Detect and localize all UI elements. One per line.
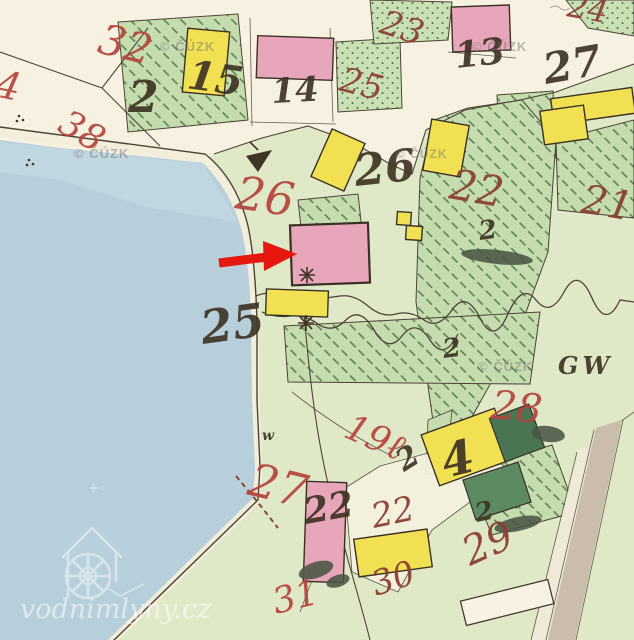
shed-small-1	[397, 212, 412, 226]
weir-symbol-1	[299, 267, 315, 283]
parcel-number: 28	[488, 382, 544, 433]
parcel-number: 21	[577, 176, 634, 230]
parcel-number: 22	[445, 159, 507, 217]
shed-small-2	[406, 225, 423, 240]
mill-building-target	[290, 223, 370, 286]
house-number: 2	[127, 72, 159, 123]
cuzk-watermark: © ČÚZK	[160, 39, 215, 54]
cuzk-watermark: © ČÚZK	[74, 146, 129, 161]
parcel-number-mill: 26	[231, 165, 297, 227]
house-number: 22	[299, 483, 357, 533]
cuzk-watermark: © ČÚZK	[472, 39, 527, 54]
weir-symbol-2	[298, 315, 314, 331]
cadastral-map[interactable]: 4 32 38 23 25 26 22 21 24 19ℓ 28 27 31 3…	[0, 0, 634, 640]
site-watermark: vodnimlyny.cz	[20, 594, 212, 625]
mill-outbuilding	[266, 289, 329, 317]
cuzk-watermark: © ČÚZK	[478, 359, 533, 374]
map-viewport[interactable]: 4 32 38 23 25 26 22 21 24 19ℓ 28 27 31 3…	[0, 0, 634, 640]
building-L-wing-b	[540, 105, 588, 145]
house-number: 25	[196, 293, 268, 356]
house-number: 15	[185, 51, 247, 105]
map-inscription-w: w	[262, 428, 275, 444]
house-number: 27	[538, 35, 605, 94]
house-number: 14	[270, 70, 319, 112]
cuzk-watermark: © ČÚZK	[396, 146, 448, 161]
map-inscription-gw: GW	[558, 351, 613, 380]
